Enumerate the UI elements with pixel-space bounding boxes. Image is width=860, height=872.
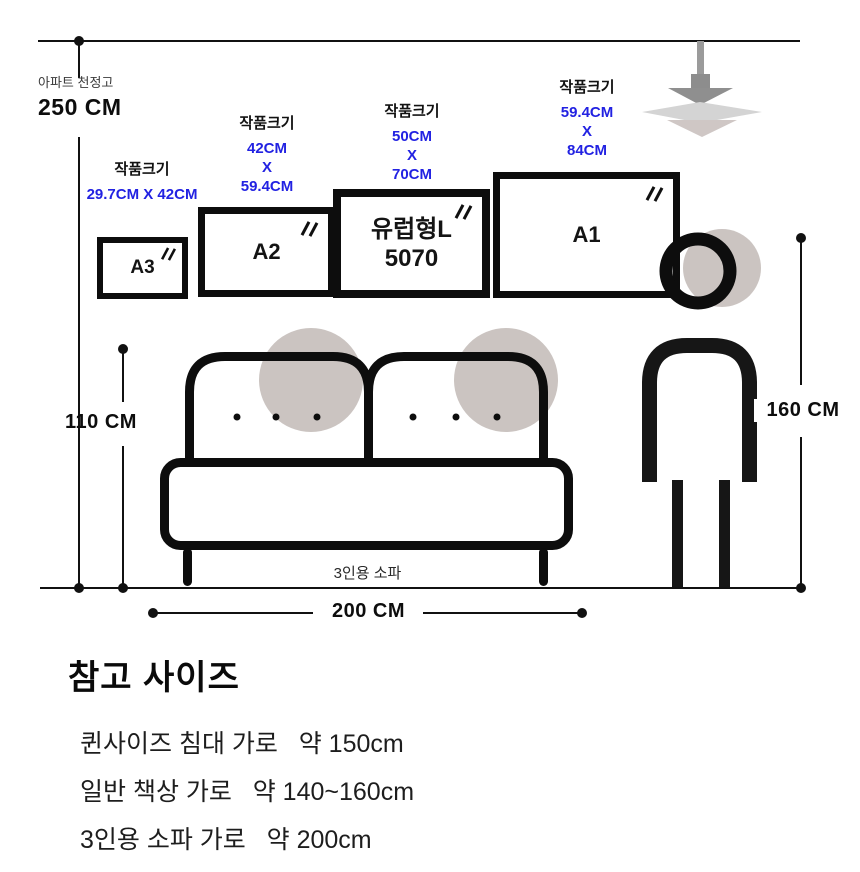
- cushion-button: [453, 414, 460, 421]
- measure-dot: [577, 608, 587, 618]
- size-value: 84CM: [517, 141, 657, 160]
- size-value: 59.4CM: [517, 103, 657, 122]
- size-value: X: [342, 146, 482, 165]
- reference-item-desk: 일반 책상 가로 약 140~160cm: [80, 768, 414, 816]
- pendant-lamp-icon: [642, 41, 762, 137]
- ground-line: [40, 587, 803, 589]
- sofa-height-measure-line: [122, 349, 124, 402]
- accent-circle: [454, 328, 558, 432]
- cushion-button: [410, 414, 417, 421]
- person-height-label: 160 CM: [754, 399, 852, 422]
- measure-dot: [74, 36, 84, 46]
- cushion-button: [273, 414, 280, 421]
- ceiling-measure-line: [78, 137, 80, 588]
- frame-a1-size-label: 작품크기 59.4CM X 84CM: [517, 76, 657, 160]
- measure-dot: [796, 233, 806, 243]
- cushion-button: [234, 414, 241, 421]
- measure-dot: [148, 608, 158, 618]
- frame-a1: A1: [493, 172, 680, 298]
- frame-name: A3: [130, 255, 154, 281]
- sofa-back-cushion-right: [369, 357, 544, 480]
- measure-dot: [118, 583, 128, 593]
- cushion-button: [494, 414, 501, 421]
- ceiling-line: [38, 40, 800, 42]
- size-value: 42CM: [197, 139, 337, 158]
- measure-dot: [118, 344, 128, 354]
- artwork-size-guide: 아파트 천정고 250 CM 작품크기 29.7CM X 42CM 작품크기 4…: [0, 0, 860, 872]
- size-value: 50CM: [342, 127, 482, 146]
- artwork-size-caption: 작품크기: [517, 76, 657, 97]
- frame-europe-l-5070: 유럽형L 5070: [333, 189, 490, 298]
- artwork-size-caption: 작품크기: [197, 112, 337, 133]
- ceiling-height-label: 아파트 천정고 250 CM: [38, 72, 122, 121]
- sofa-width-measure-line: [423, 612, 579, 614]
- size-value: X: [517, 122, 657, 141]
- person-leg: [719, 480, 730, 587]
- frame-a3: A3: [97, 237, 188, 299]
- reference-item-sofa: 3인용 소파 가로 약 200cm: [80, 816, 414, 864]
- cushion-button: [314, 414, 321, 421]
- frame-a2-size-label: 작품크기 42CM X 59.4CM: [197, 112, 337, 196]
- size-value: 70CM: [342, 165, 482, 184]
- size-value: 59.4CM: [197, 177, 337, 196]
- glare-icon: [161, 247, 175, 261]
- measure-dot: [74, 583, 84, 593]
- sofa-height-label: 110 CM: [36, 411, 166, 434]
- size-value: 29.7CM X 42CM: [72, 185, 212, 204]
- frame-name: 유럽형L: [371, 215, 452, 244]
- frame-a3-size-label: 작품크기 29.7CM X 42CM: [72, 158, 212, 204]
- three-seat-sofa: [165, 357, 569, 587]
- accent-circle: [259, 328, 363, 432]
- glare-icon: [301, 221, 318, 238]
- frame-l-size-label: 작품크기 50CM X 70CM: [342, 100, 482, 184]
- person-height-measure-line: [800, 437, 802, 588]
- glare-icon: [646, 186, 663, 203]
- measure-dot: [796, 583, 806, 593]
- artwork-size-caption: 작품크기: [342, 100, 482, 121]
- artwork-size-caption: 작품크기: [72, 158, 212, 179]
- sofa-caption: 3인용 소파: [300, 562, 435, 583]
- person-figure: [650, 346, 750, 588]
- size-value: X: [197, 158, 337, 177]
- glare-icon: [455, 204, 472, 221]
- sofa-width-label: 200 CM: [316, 600, 421, 623]
- sofa-leg: [539, 548, 548, 586]
- ceiling-height-value: 250 CM: [38, 94, 122, 121]
- accent-circle: [683, 229, 761, 307]
- sofa-leg: [183, 548, 192, 586]
- reference-sizes-title: 참고 사이즈: [68, 650, 240, 699]
- reference-sizes-list: 퀸사이즈 침대 가로 약 150cm 일반 책상 가로 약 140~160cm …: [80, 720, 414, 864]
- sofa-seat: [165, 463, 569, 546]
- sofa-back-cushion-left: [190, 357, 369, 480]
- person-height-measure-line: [800, 238, 802, 385]
- sofa-height-measure-line: [122, 446, 124, 588]
- frame-name: A2: [252, 239, 280, 265]
- sofa-width-measure-line: [155, 612, 313, 614]
- person-leg: [672, 480, 683, 587]
- frame-a2: A2: [198, 207, 335, 297]
- frame-name-2: 5070: [385, 244, 438, 273]
- ceiling-label-text: 아파트 천정고: [38, 72, 122, 91]
- reference-item-bed: 퀸사이즈 침대 가로 약 150cm: [80, 720, 414, 768]
- frame-name: A1: [572, 222, 600, 248]
